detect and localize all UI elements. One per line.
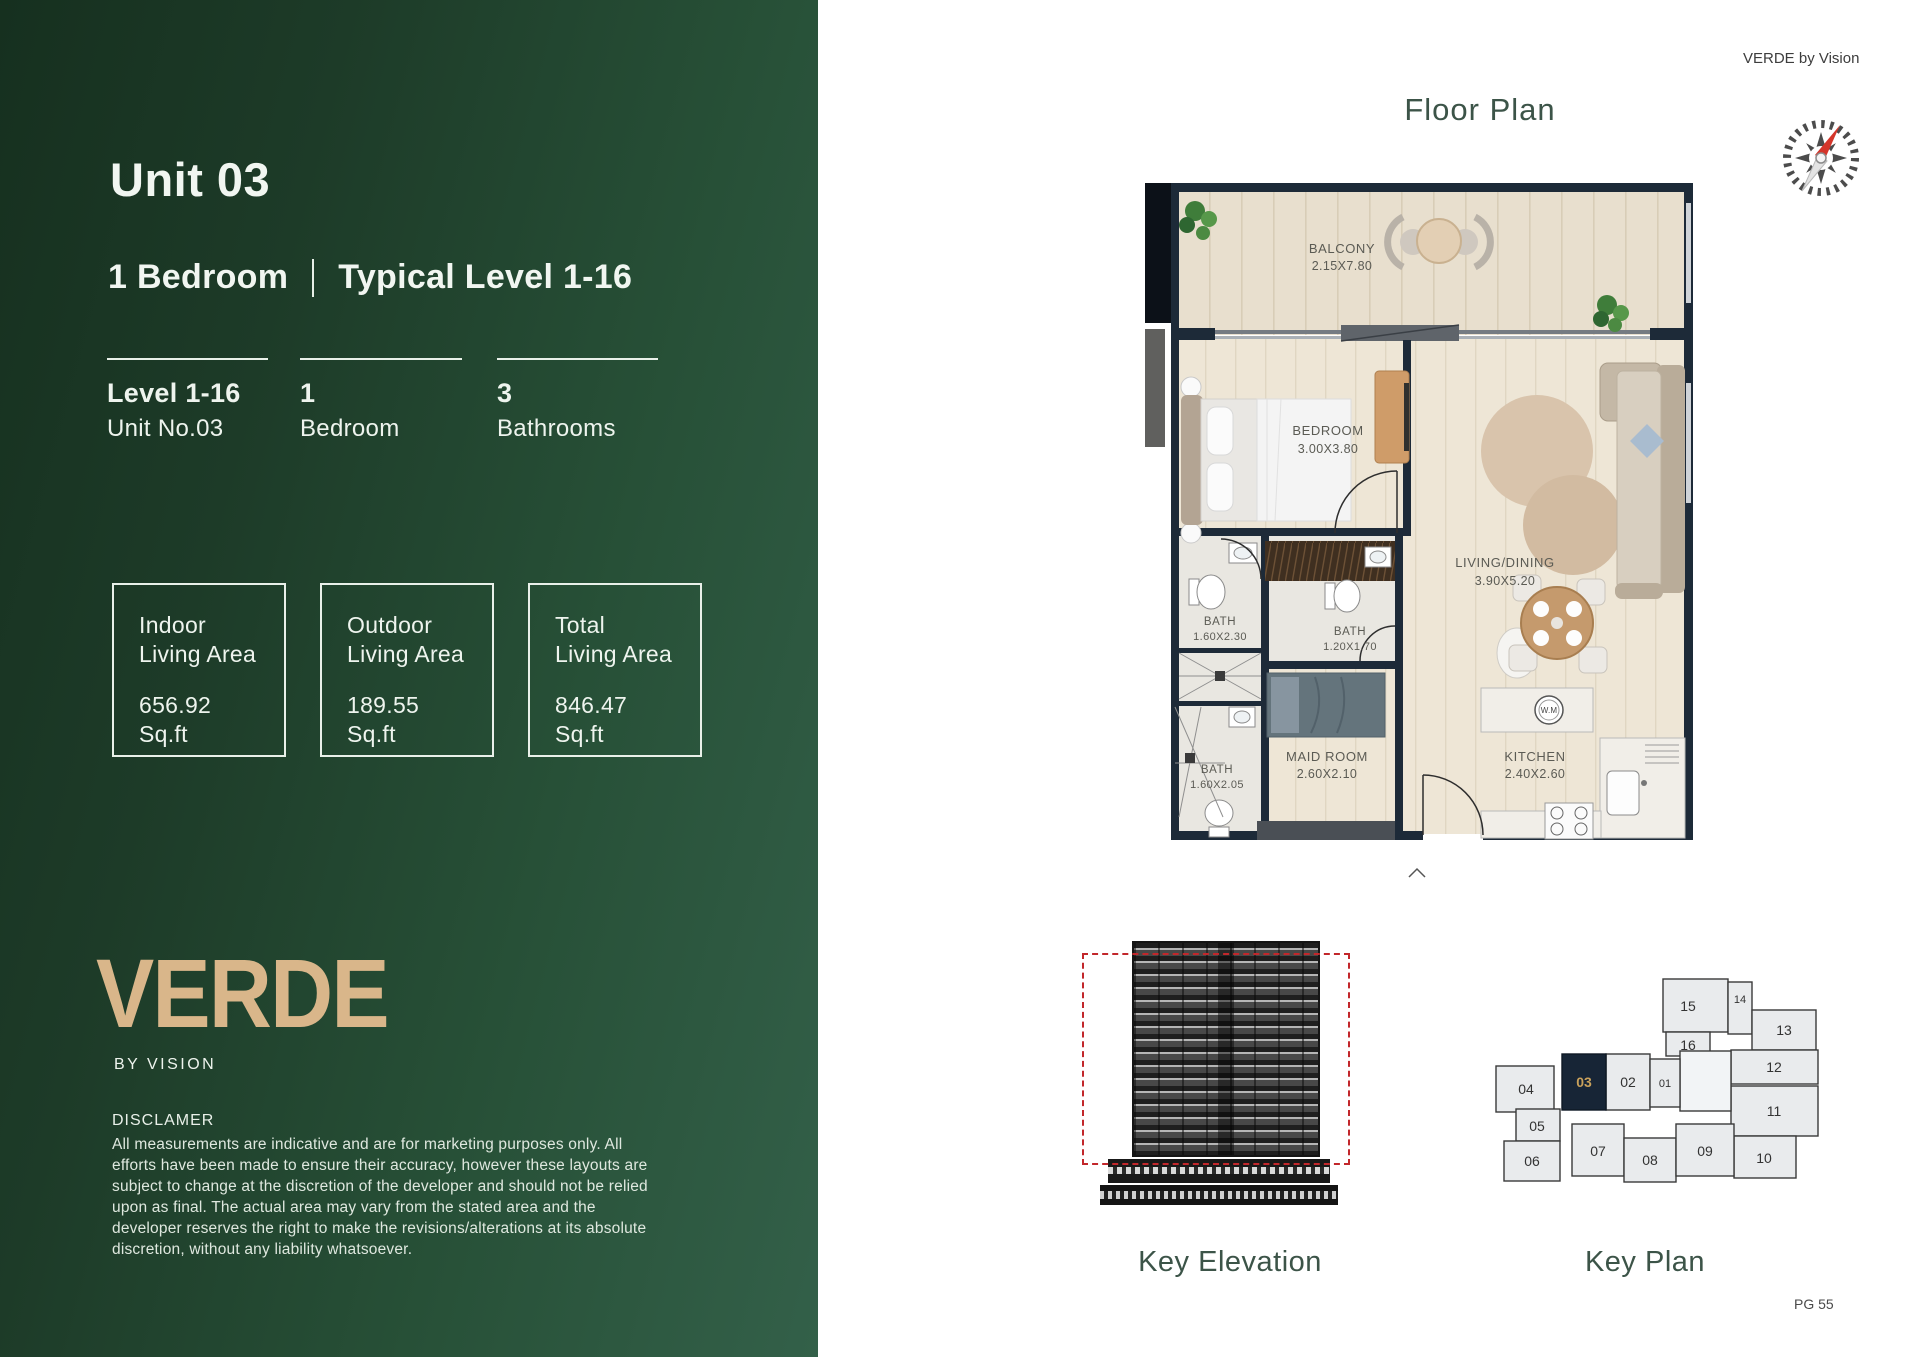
svg-text:11: 11 [1767, 1103, 1782, 1119]
stat-bathrooms-label: Bathrooms [497, 415, 658, 443]
highlighted-levels-outline [1082, 953, 1350, 1165]
svg-text:1.20X1.70: 1.20X1.70 [1323, 641, 1377, 653]
left-info-panel: Unit 03 1 Bedroom Typical Level 1-16 Lev… [0, 0, 818, 1357]
disclaimer-body: All measurements are indicative and are … [112, 1134, 660, 1260]
svg-text:06: 06 [1524, 1153, 1540, 1169]
svg-text:12: 12 [1766, 1059, 1782, 1075]
svg-text:13: 13 [1776, 1022, 1792, 1038]
svg-text:15: 15 [1680, 998, 1696, 1014]
svg-text:14: 14 [1734, 994, 1746, 1006]
unit-title: Unit 03 [110, 152, 270, 207]
total-area-title: TotalLiving Area [555, 611, 700, 669]
svg-text:08: 08 [1642, 1152, 1658, 1168]
structural-fin [1145, 329, 1165, 447]
svg-text:1.60X2.05: 1.60X2.05 [1190, 779, 1244, 791]
svg-text:16: 16 [1680, 1037, 1696, 1053]
key-plan-drawing: 01 02 03 04 05 06 07 08 09 10 11 12 13 1… [1488, 966, 1822, 1220]
room-label-kitchen: KITCHEN [1504, 749, 1565, 764]
unit-levels: Typical Level 1-16 [338, 258, 632, 297]
svg-text:2.60X2.10: 2.60X2.10 [1297, 767, 1358, 781]
svg-text:09: 09 [1697, 1143, 1713, 1159]
room-label-bath3: BATH [1201, 764, 1233, 776]
key-plan-label: Key Plan [1520, 1246, 1770, 1279]
compass-icon [1771, 108, 1871, 208]
outdoor-area-title: OutdoorLiving Area [347, 611, 492, 669]
section-caret-icon [1409, 869, 1425, 877]
outdoor-area-value: 189.55Sq.ft [347, 691, 492, 749]
key-elevation-illustration [1078, 933, 1360, 1235]
svg-text:02: 02 [1620, 1074, 1636, 1090]
key-plan-highlighted-number: 03 [1576, 1074, 1592, 1090]
total-area-value: 846.47Sq.ft [555, 691, 700, 749]
room-label-wm: W.M [1541, 706, 1558, 715]
indoor-area-title: IndoorLiving Area [139, 611, 284, 669]
disclaimer-title: DISCLAMER [112, 1112, 214, 1130]
window-glass [1686, 203, 1691, 303]
key-elevation-label: Key Elevation [1090, 1246, 1370, 1279]
room-label-bath1: BATH [1204, 616, 1236, 628]
svg-text:2.15X7.80: 2.15X7.80 [1312, 259, 1373, 273]
tv-console-icon [1375, 371, 1409, 463]
svg-text:3.00X3.80: 3.00X3.80 [1298, 442, 1359, 456]
room-label-living: LIVING/DINING [1455, 555, 1555, 570]
tower-base [1100, 1185, 1338, 1205]
dining-table-icon [1509, 575, 1607, 673]
structural-column [1145, 183, 1171, 323]
verde-logo: VERDE [96, 938, 388, 1050]
stat-bedroom-value: 1 [300, 378, 462, 409]
entry-closet-icon [1257, 821, 1395, 840]
page-number: PG 55 [1794, 1296, 1834, 1312]
room-label-maid: MAID ROOM [1286, 749, 1368, 764]
outdoor-area-box: OutdoorLiving Area 189.55Sq.ft [320, 583, 494, 757]
svg-text:2.40X2.60: 2.40X2.60 [1505, 767, 1566, 781]
maid-bed-icon [1267, 673, 1385, 737]
svg-text:1.60X2.30: 1.60X2.30 [1193, 631, 1247, 643]
stat-bedroom-label: Bedroom [300, 415, 462, 443]
svg-text:3.90X5.20: 3.90X5.20 [1475, 574, 1536, 588]
subtitle-divider [312, 259, 314, 297]
indoor-area-box: IndoorLiving Area 656.92Sq.ft [112, 583, 286, 757]
stat-level-label: Unit No.03 [107, 415, 268, 443]
stove-icon [1545, 803, 1593, 839]
brand-watermark: VERDE by Vision [1743, 50, 1859, 67]
room-label-bedroom: BEDROOM [1292, 423, 1363, 438]
total-area-box: TotalLiving Area 846.47Sq.ft [528, 583, 702, 757]
svg-text:07: 07 [1590, 1143, 1606, 1159]
brand-tagline: BY VISION [114, 1056, 216, 1074]
svg-text:05: 05 [1529, 1118, 1545, 1134]
svg-text:10: 10 [1756, 1150, 1772, 1166]
stat-bathrooms: 3 Bathrooms [497, 358, 658, 443]
window-glass [1686, 383, 1691, 503]
indoor-area-value: 656.92Sq.ft [139, 691, 284, 749]
unit-type: 1 Bedroom [108, 258, 288, 297]
svg-text:04: 04 [1518, 1081, 1534, 1097]
svg-text:01: 01 [1659, 1078, 1671, 1090]
stat-level-value: Level 1-16 [107, 378, 268, 409]
stat-bedroom: 1 Bedroom [300, 358, 462, 443]
bed-icon [1181, 377, 1351, 543]
floor-plan-drawing: BALCONY 2.15X7.80 BEDROOM 3.00X3.80 LIVI… [1145, 183, 1703, 885]
room-label-balcony: BALCONY [1309, 241, 1375, 256]
stat-bathrooms-value: 3 [497, 378, 658, 409]
brochure-page: Unit 03 1 Bedroom Typical Level 1-16 Lev… [0, 0, 1920, 1357]
room-label-bath2: BATH [1334, 626, 1366, 638]
unit-subtitle: 1 Bedroom Typical Level 1-16 [108, 258, 632, 297]
floor-plan-title: Floor Plan [1355, 92, 1605, 128]
stat-level: Level 1-16 Unit No.03 [107, 358, 268, 443]
